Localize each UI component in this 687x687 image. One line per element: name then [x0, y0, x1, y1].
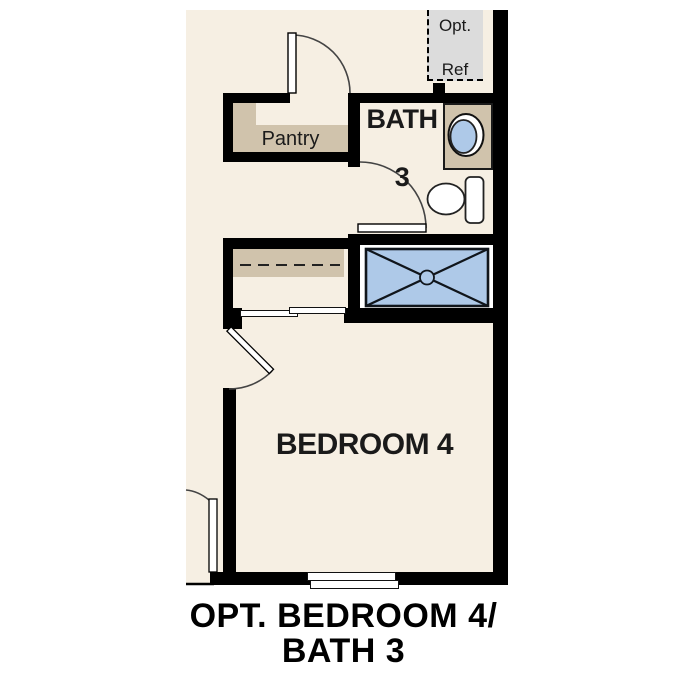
pantry-floor-notch: [256, 103, 348, 125]
wall-closet-top: [223, 238, 360, 249]
bath-label-line2: 3: [395, 162, 410, 192]
wall-bedroom-top-right: [344, 308, 508, 323]
window-pane-bottom: [310, 580, 399, 589]
wall-pantry-bottom: [223, 152, 360, 162]
wall-right: [493, 10, 508, 585]
wall-shower-top: [348, 234, 508, 245]
bedroom-label: BEDROOM 4: [236, 429, 493, 461]
opt-ref-line1: Opt.: [439, 16, 471, 35]
opt-ref-line2: Ref: [442, 60, 468, 79]
opt-ref-label: Opt. Ref: [427, 15, 483, 81]
closet-shelf: [233, 249, 344, 277]
floorplan-caption: OPT. BEDROOM 4/ BATH 3: [0, 599, 687, 669]
caption-line1: OPT. BEDROOM 4/: [190, 597, 498, 635]
wall-bath-top: [348, 93, 508, 103]
wall-bedroom-left: [223, 388, 236, 585]
sliding-door-panel-front: [289, 307, 346, 314]
shower-surround: [360, 245, 493, 308]
wall-pantry-top: [223, 93, 290, 103]
bath-label: BATH 3: [358, 105, 446, 192]
caption-line2: BATH 3: [282, 632, 405, 670]
wall-optref-step: [433, 83, 445, 95]
bath-label-line1: BATH: [367, 104, 438, 134]
sink-counter: [443, 103, 493, 170]
floorplan-canvas: Opt. Ref: [0, 0, 687, 687]
pantry-label: Pantry: [233, 126, 348, 152]
